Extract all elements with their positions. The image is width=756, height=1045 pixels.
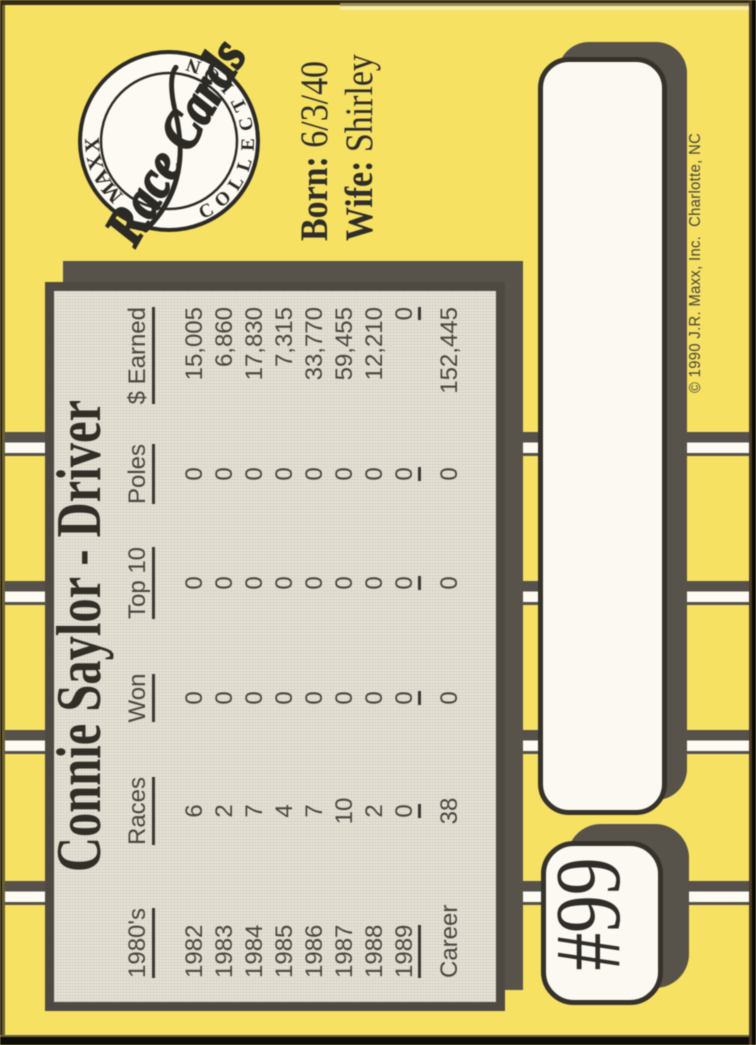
svg-text:X: X	[80, 137, 105, 153]
svg-text:E: E	[238, 138, 260, 152]
